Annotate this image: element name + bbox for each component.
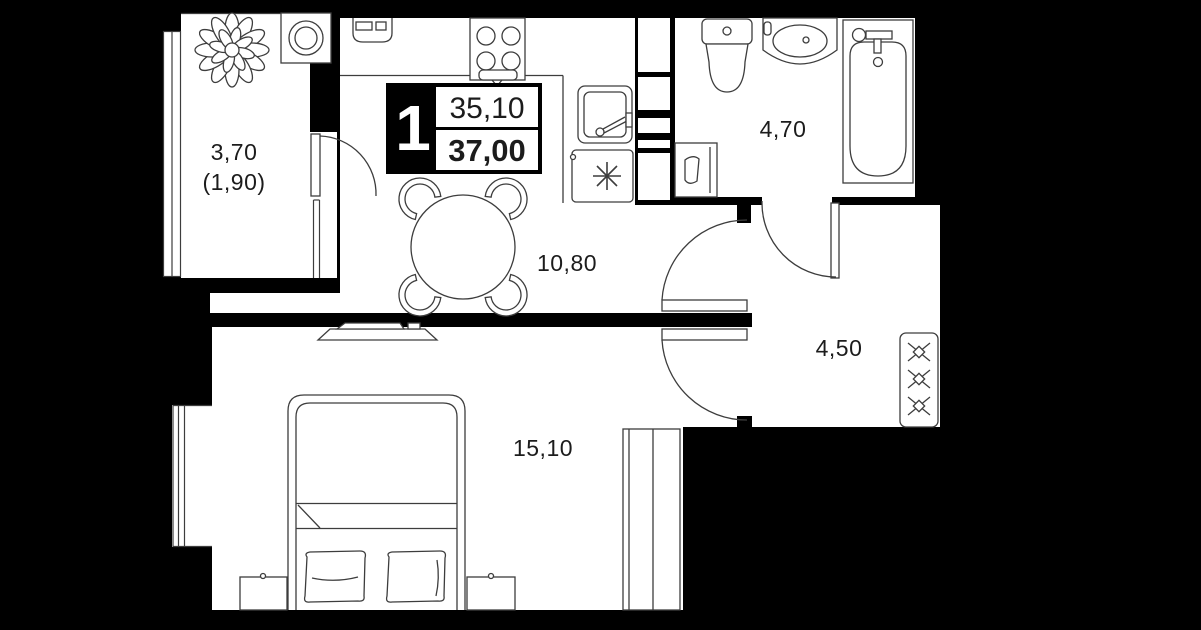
unit-badge: 1 35,10 37,00: [388, 85, 540, 172]
floor-plan: 1 35,10 37,00 3,70 (1,90) 10,80 4,70 4,5…: [0, 0, 1201, 630]
round-washer-icon: [281, 13, 331, 63]
washing-machine-icon: [571, 150, 634, 202]
wall-kitchen-bedroom: [210, 313, 752, 327]
nightstand-icon: [467, 574, 515, 611]
hall-wardrobe-icon: [900, 333, 938, 427]
bedroom-wardrobe-icon: [623, 429, 680, 610]
bathroom-area-label: 4,70: [760, 116, 807, 142]
bathtub-icon: [843, 20, 913, 183]
pillow-icon: [305, 551, 366, 602]
bath-washer-icon: [675, 143, 717, 197]
bedroom-door-zone: [683, 327, 747, 427]
floor-plan-canvas: 1 35,10 37,00 3,70 (1,90) 10,80 4,70 4,5…: [0, 0, 1201, 630]
balcony-area-alt-label: (1,90): [202, 169, 265, 195]
ventilation-shaft: [638, 18, 670, 200]
badge-living-area: 35,10: [449, 92, 524, 125]
cooker-hood-icon: [353, 18, 392, 42]
stove-icon: [470, 18, 525, 86]
balcony-area-label: 3,70: [211, 139, 258, 165]
dining-table-icon: [411, 195, 515, 299]
badge-total-area: 37,00: [448, 133, 526, 168]
bathroom-door-gap: [762, 197, 832, 206]
bedroom-area-label: 15,10: [513, 435, 573, 461]
kitchen-area-label: 10,80: [537, 250, 597, 276]
hallway-area-label: 4,50: [816, 335, 863, 361]
wall-nub-hallway-bottom: [737, 416, 752, 430]
badge-rooms-count: 1: [395, 92, 431, 164]
kitchen-sink-icon: [578, 86, 632, 143]
bed-icon: [288, 395, 465, 610]
nightstand-icon: [240, 574, 287, 611]
vanity-sink-icon: [763, 18, 837, 64]
